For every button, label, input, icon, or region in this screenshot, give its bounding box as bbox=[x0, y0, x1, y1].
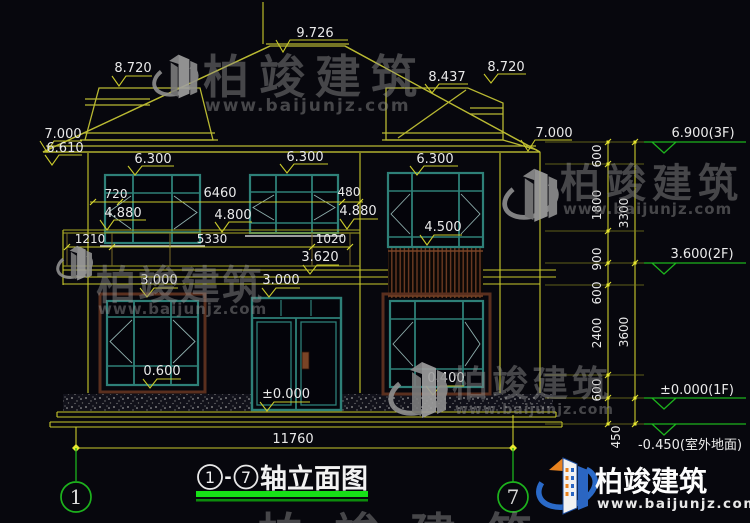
dim-6460: 6460 bbox=[203, 186, 236, 201]
dim-entry-door: ±0.000 bbox=[262, 387, 310, 402]
level-1f: ±0.000(1F) bbox=[660, 383, 734, 398]
dim-v2400: 2400 bbox=[590, 318, 604, 349]
dim-sill2f-left: 4.880 bbox=[104, 206, 141, 221]
door-handle bbox=[302, 352, 309, 369]
watermark-brand: 柏竣建筑 bbox=[258, 508, 562, 523]
watermark-site: www.baijunjz.com bbox=[205, 96, 411, 116]
logo-site: www.baijunjz.com bbox=[597, 496, 750, 512]
title-text: 轴立面图 bbox=[260, 463, 368, 495]
watermark-site: www.baijunjz.com bbox=[98, 300, 267, 318]
bay-railing-2f bbox=[388, 247, 483, 298]
dim-right-roof-a: 8.437 bbox=[428, 70, 465, 85]
dim-head2f-mid: 6.300 bbox=[286, 150, 323, 165]
axis-1-number: 1 bbox=[70, 485, 83, 509]
watermark-lower-right: 柏竣建筑 www.baijunjz.com bbox=[386, 362, 614, 420]
cad-elevation-screenshot: 1 7 9.726 8.720 8.437 8.720 7.000 7.000 … bbox=[0, 0, 750, 523]
title-axis-to: 7 bbox=[241, 468, 251, 487]
logo-tower-blue bbox=[578, 466, 588, 510]
dim-eave-left-lower: 6.610 bbox=[46, 141, 83, 156]
left-wing-roof bbox=[80, 88, 218, 140]
dim-1210: 1210 bbox=[75, 232, 106, 246]
window-2f-bay bbox=[388, 173, 483, 247]
level-2f: 3.600(2F) bbox=[670, 247, 733, 262]
drawing-title: 1 - 7 轴立面图 bbox=[196, 463, 368, 502]
watermark-site: www.baijunjz.com bbox=[455, 402, 614, 418]
window-2f-mid bbox=[245, 175, 343, 236]
dim-left-roof: 8.720 bbox=[114, 61, 151, 76]
dim-head2f-left: 6.300 bbox=[134, 152, 171, 167]
watermark-top: 柏竣建筑 www.baijunjz.com bbox=[150, 50, 427, 116]
dim-1020: 1020 bbox=[316, 232, 347, 246]
dim-eave-right: 7.000 bbox=[535, 126, 572, 141]
title-dash: - bbox=[224, 467, 231, 488]
axis-bubble-1: 1 bbox=[61, 448, 91, 512]
logo-roof-orange bbox=[549, 458, 563, 471]
dim-sill2f-mid: 4.800 bbox=[214, 208, 251, 223]
logo-brand: 柏竣建筑 bbox=[595, 465, 707, 498]
dim-v900: 900 bbox=[590, 248, 604, 271]
dim-total-width: 11760 bbox=[272, 432, 313, 447]
title-axis-from: 1 bbox=[205, 468, 215, 487]
dim-eave-left-upper: 7.000 bbox=[44, 127, 81, 142]
dim-720: 720 bbox=[105, 187, 128, 201]
dim-v3600: 3600 bbox=[617, 317, 631, 348]
dim-head2f-right: 6.300 bbox=[416, 152, 453, 167]
watermark-bottom-clipped: 柏竣建筑 bbox=[258, 508, 562, 523]
company-logo: 柏竣建筑 www.baijunjz.com bbox=[534, 458, 750, 514]
dim-5330: 5330 bbox=[197, 232, 228, 246]
axis-7-number: 7 bbox=[507, 485, 520, 509]
watermark-mid-left: 柏竣建筑 www.baijunjz.com bbox=[55, 246, 268, 318]
logo-tower-white bbox=[563, 458, 577, 514]
level-ground: -0.450(室外地面) bbox=[638, 437, 742, 453]
level-3f: 6.900(3F) bbox=[671, 126, 734, 141]
elevation-drawing: 1 7 9.726 8.720 8.437 8.720 7.000 7.000 … bbox=[0, 0, 750, 523]
title-underline bbox=[196, 491, 368, 497]
dim-right-roof-b: 8.720 bbox=[487, 60, 524, 75]
dim-ridge: 9.726 bbox=[296, 26, 333, 41]
dim-480: 480 bbox=[338, 185, 361, 199]
watermark-site: www.baijunjz.com bbox=[563, 200, 732, 218]
dim-balcony-rail: 3.620 bbox=[301, 250, 338, 265]
dim-sill1f-left: 0.600 bbox=[143, 364, 180, 379]
dim-sill2f-bay: 4.500 bbox=[424, 220, 461, 235]
watermark-right: 柏竣建筑 www.baijunjz.com bbox=[500, 161, 744, 224]
dim-v600b: 600 bbox=[590, 282, 604, 305]
axis-bubble-7: 7 bbox=[498, 448, 528, 512]
dim-v450: 450 bbox=[609, 426, 623, 449]
title-underline-2 bbox=[196, 499, 368, 502]
dim-sill2f-right: 4.880 bbox=[339, 204, 376, 219]
dim-floor2f-b: 3.000 bbox=[262, 273, 299, 288]
watermark-brand: 柏竣建筑 bbox=[452, 364, 612, 405]
